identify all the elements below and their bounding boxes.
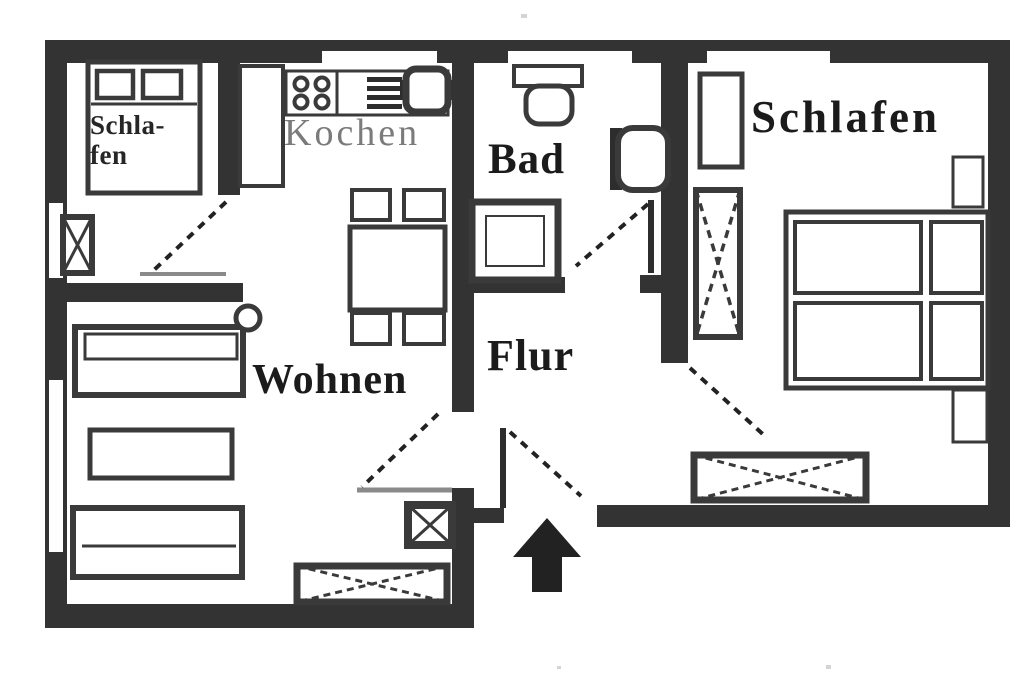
washbasin-shelf bbox=[514, 66, 582, 86]
wardrobe-crossed-icon bbox=[696, 190, 740, 337]
door-leaf-entrance bbox=[500, 428, 506, 508]
bed-pillow bbox=[97, 71, 133, 98]
window-top-kitchen bbox=[322, 51, 437, 63]
door-swing-bedroom-main bbox=[690, 368, 766, 437]
door-swing-bedroom-small bbox=[154, 202, 226, 270]
wall-bottom-left bbox=[45, 604, 472, 628]
floor-plan-page: Schla- fen Kochen Bad Flur Wohnen Schlaf… bbox=[0, 0, 1024, 683]
entrance-arrow-icon bbox=[513, 518, 581, 592]
chair bbox=[352, 190, 390, 220]
room-label-bedroom-main: Schlafen bbox=[751, 92, 940, 142]
chair bbox=[404, 313, 444, 344]
oven-stripe bbox=[367, 104, 402, 109]
wall-bedroom-small-right bbox=[218, 62, 240, 195]
window-left-lower bbox=[49, 380, 63, 552]
sink-icon bbox=[400, 69, 452, 112]
shelf-crossed-icon bbox=[408, 505, 452, 545]
kitchen-counter-icon bbox=[286, 69, 452, 115]
door-swing-bath bbox=[576, 204, 648, 266]
window-top-bath bbox=[508, 51, 632, 63]
nightstand-icon bbox=[953, 157, 983, 207]
stove-burner bbox=[316, 96, 329, 109]
tall-cabinet-icon bbox=[240, 66, 283, 186]
washbasin-bowl bbox=[526, 86, 572, 124]
door-swing-entrance bbox=[510, 432, 581, 496]
sofa-backrest bbox=[85, 334, 237, 359]
shower-tray bbox=[472, 202, 558, 280]
shower-icon bbox=[472, 202, 558, 280]
wall-bedroom-small-bottom bbox=[45, 283, 243, 302]
oven-stripe bbox=[367, 86, 402, 91]
washbasin-icon bbox=[514, 66, 582, 124]
double-bed-icon bbox=[786, 212, 988, 388]
sofa-frame bbox=[73, 508, 242, 577]
stove-burner bbox=[316, 78, 329, 91]
door-swing-living bbox=[362, 414, 438, 487]
sink-basin bbox=[406, 69, 448, 112]
oven-stripe bbox=[367, 95, 402, 100]
lamp-icon bbox=[236, 306, 260, 330]
nightstand-icon bbox=[200, 63, 218, 93]
room-label-living: Wohnen bbox=[252, 357, 407, 404]
bed-mattress bbox=[795, 222, 921, 293]
bed-pillow bbox=[143, 71, 181, 98]
toilet-bowl bbox=[618, 128, 668, 190]
sofa-icon bbox=[73, 508, 242, 577]
sofa-icon bbox=[75, 327, 243, 395]
wall-bath-door-jamb bbox=[640, 275, 664, 293]
nightstand-icon bbox=[953, 390, 987, 442]
room-label-bathroom: Bad bbox=[488, 136, 565, 184]
sideboard-crossed-icon bbox=[297, 566, 447, 602]
scan-speck bbox=[557, 666, 561, 669]
wall-entrance-stub bbox=[474, 508, 504, 523]
nightstand-icon bbox=[67, 63, 87, 93]
sideboard-crossed-icon bbox=[694, 455, 866, 500]
dining-table-icon bbox=[350, 190, 445, 344]
kitchen-furniture bbox=[240, 66, 452, 344]
tall-cabinet-icon bbox=[700, 74, 742, 167]
wall-bottom-right bbox=[597, 505, 1010, 527]
window-top-bedroom bbox=[707, 51, 830, 63]
bed-pillow bbox=[931, 222, 982, 293]
room-label-bedroom-small: Schla- fen bbox=[90, 110, 165, 170]
wall-bath-bedroom bbox=[661, 62, 688, 363]
bed-pillow bbox=[931, 303, 982, 379]
room-label-kitchen: Kochen bbox=[284, 112, 420, 155]
living-room-furniture bbox=[73, 306, 452, 602]
door-leaf-bath bbox=[648, 200, 654, 273]
chair bbox=[404, 190, 444, 220]
table-top bbox=[350, 227, 445, 310]
bed-mattress bbox=[795, 303, 921, 379]
scan-speck bbox=[521, 14, 527, 18]
toilet-icon bbox=[610, 128, 668, 190]
coffee-table-icon bbox=[90, 430, 232, 478]
stove-burner bbox=[295, 96, 308, 109]
wall-right bbox=[988, 40, 1010, 527]
stove-burner bbox=[295, 78, 308, 91]
chair bbox=[352, 313, 390, 344]
room-label-hallway: Flur bbox=[487, 331, 574, 380]
oven-stripe bbox=[367, 77, 402, 82]
scan-speck bbox=[826, 665, 831, 669]
shelf-crossed-icon bbox=[63, 217, 92, 273]
